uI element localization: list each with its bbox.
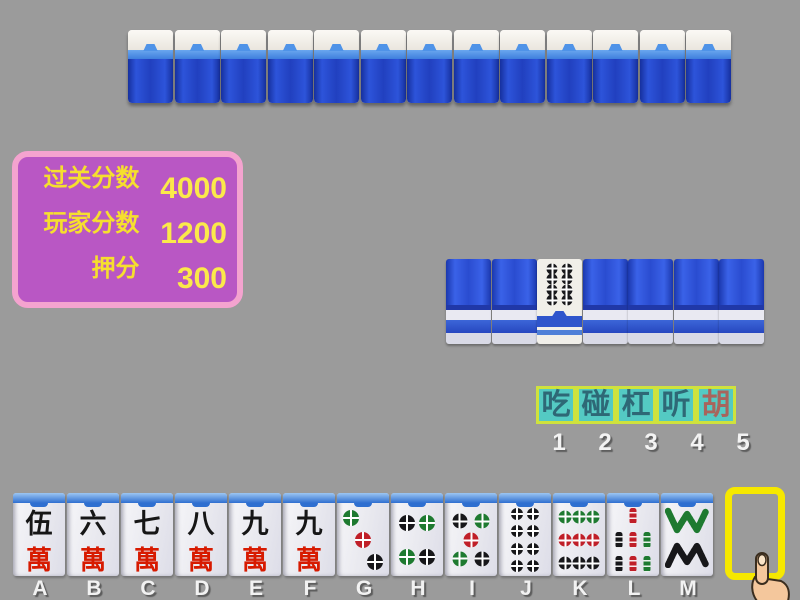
bamboo-stick: [643, 532, 650, 548]
hand-tile-C[interactable]: 七萬: [121, 493, 173, 576]
ting-button[interactable]: 听: [656, 386, 696, 424]
tile-face: 九萬: [229, 504, 281, 576]
dot-pip: [561, 295, 572, 306]
tile-face: [445, 504, 497, 576]
dot-pip: [527, 508, 539, 520]
dot-pip: [547, 295, 558, 306]
wan-suit-char: 萬: [175, 547, 227, 573]
wan-suit-char: 萬: [13, 547, 65, 573]
hand-key-label-D: D: [175, 577, 229, 600]
bamboo-stick: [643, 556, 650, 572]
opponent-tile-back-side: [719, 259, 764, 344]
opponent-tile-back-side: [492, 259, 537, 344]
hand-key-label-J: J: [499, 577, 553, 600]
score-row: 玩家分数 1200: [24, 210, 227, 249]
tile-face: [499, 504, 551, 576]
action-number-hint: 5: [720, 429, 766, 457]
bamboo-stick: [630, 532, 637, 548]
dot-pip: [573, 534, 586, 547]
chi-button[interactable]: 吃: [536, 386, 576, 424]
action-number-hint: 2: [582, 429, 628, 457]
bamboo-stick: [630, 556, 637, 572]
player-score-value: 1200: [139, 219, 227, 249]
tile-face: 八萬: [175, 504, 227, 576]
tile-face: [337, 504, 389, 576]
dot-pip: [586, 510, 599, 523]
dot-pip: [547, 263, 558, 274]
score-panel: 过关分数 4000 玩家分数 1200 押分 300: [12, 151, 243, 308]
hand-tile-L[interactable]: [607, 493, 659, 576]
opponent-tiles-right: [446, 259, 765, 344]
dot-pip: [399, 515, 415, 531]
score-row: 过关分数 4000: [24, 165, 227, 204]
dot-pip: [559, 557, 572, 570]
dot-pip: [561, 263, 572, 274]
opponent-tile-back: [268, 30, 313, 103]
opponent-tile-back: [361, 30, 406, 103]
hand-tile-K[interactable]: [553, 493, 605, 576]
action-button-bar: 吃碰杠听胡: [536, 386, 736, 424]
hand-key-label-M: M: [661, 577, 715, 600]
dot-pip: [559, 510, 572, 523]
hand-tile-A[interactable]: 伍萬: [13, 493, 65, 576]
bamboo-zigzag: [665, 506, 709, 539]
hand-tile-H[interactable]: [391, 493, 443, 576]
bamboo-stick: [630, 508, 637, 524]
wan-suit-char: 萬: [67, 547, 119, 573]
dot-pip: [419, 515, 435, 531]
wan-suit-char: 萬: [229, 547, 281, 573]
bamboo-zigzag: [665, 540, 709, 573]
tile-face: [391, 504, 443, 576]
opponent-hand-top: [128, 30, 733, 103]
tile-face: [661, 504, 713, 576]
hand-key-label-F: F: [283, 577, 337, 600]
bamboo-stick: [616, 532, 623, 548]
dot-pip: [511, 543, 523, 555]
player-score-label: 玩家分数: [24, 210, 139, 239]
hand-tile-D[interactable]: 八萬: [175, 493, 227, 576]
hand-key-label-H: H: [391, 577, 445, 600]
tile-face: 九萬: [283, 504, 335, 576]
hand-key-label-C: C: [121, 577, 175, 600]
dot-pip: [561, 284, 572, 295]
dot-pip: [559, 534, 572, 547]
score-row: 押分 300: [24, 255, 227, 294]
bet-score-value: 300: [139, 264, 227, 294]
gang-button[interactable]: 杠: [616, 386, 656, 424]
opponent-tile-back: [500, 30, 545, 103]
bet-score-label: 押分: [24, 255, 139, 284]
action-number-hint: 1: [536, 429, 582, 457]
dot-pip: [573, 557, 586, 570]
opponent-tile-back-side: [583, 259, 628, 344]
hand-key-label-B: B: [67, 577, 121, 600]
wan-suit-char: 萬: [121, 547, 173, 573]
dot-pip: [355, 532, 371, 548]
dot-pip: [527, 543, 539, 555]
hand-tile-J[interactable]: [499, 493, 551, 576]
wan-number-char: 伍: [13, 511, 65, 538]
tile-face: [607, 504, 659, 576]
dot-pip: [547, 284, 558, 295]
hand-key-label-K: K: [553, 577, 607, 600]
hand-tile-F[interactable]: 九萬: [283, 493, 335, 576]
dot-pip: [511, 508, 523, 520]
dot-pip: [511, 525, 523, 537]
bamboo-stick: [616, 556, 623, 572]
opponent-tile-back: [593, 30, 638, 103]
action-number-hint: 3: [628, 429, 674, 457]
hand-tile-I[interactable]: [445, 493, 497, 576]
opponent-tile-back: [407, 30, 452, 103]
player-hand: 伍萬六萬七萬八萬九萬九萬: [13, 493, 715, 576]
dot-pip: [527, 560, 539, 572]
opponent-tile-back: [128, 30, 173, 103]
opponent-tile-back-side: [628, 259, 673, 344]
dot-pip: [464, 533, 479, 548]
dot-pip: [475, 514, 490, 529]
dot-pip: [547, 274, 558, 285]
dot-pip: [452, 551, 467, 566]
tile-face: 六萬: [67, 504, 119, 576]
opponent-tile-back: [175, 30, 220, 103]
peng-button[interactable]: 碰: [576, 386, 616, 424]
dot-pip: [399, 549, 415, 565]
dot-pip: [343, 510, 359, 526]
hand-key-label-I: I: [445, 577, 499, 600]
mahjong-game-screen: 过关分数 4000 玩家分数 1200 押分 300 吃碰杠听胡 12345 伍…: [0, 0, 800, 600]
pass-score-label: 过关分数: [24, 165, 139, 194]
hand-key-label-G: G: [337, 577, 391, 600]
opponent-tile-back: [221, 30, 266, 103]
dot-pip: [419, 549, 435, 565]
action-number-hint: 4: [674, 429, 720, 457]
dot-pip: [573, 510, 586, 523]
hand-tile-G[interactable]: [337, 493, 389, 576]
opponent-face-up-tile-8-dots: [537, 259, 582, 344]
dot-pip: [367, 554, 383, 570]
hand-cursor-icon: [741, 551, 797, 600]
wan-number-char: 七: [121, 511, 173, 538]
dot-pip: [586, 534, 599, 547]
opponent-tile-back: [454, 30, 499, 103]
hand-tile-E[interactable]: 九萬: [229, 493, 281, 576]
wan-suit-char: 萬: [283, 547, 335, 573]
hand-key-label-A: A: [13, 577, 67, 600]
wan-number-char: 八: [175, 511, 227, 538]
tile-face: [553, 504, 605, 576]
wan-number-char: 九: [283, 511, 335, 538]
dot-pip: [561, 274, 572, 285]
tile-face: 七萬: [121, 504, 173, 576]
hand-key-label-L: L: [607, 577, 661, 600]
wan-number-char: 九: [229, 511, 281, 538]
hand-key-labels: ABCDEFGHIJKLM: [13, 577, 715, 600]
opponent-tile-back-side: [446, 259, 491, 344]
action-number-hints: 12345: [536, 429, 766, 457]
opponent-tile-back: [314, 30, 359, 103]
tile-face: 伍萬: [13, 504, 65, 576]
hu-button[interactable]: 胡: [696, 386, 736, 424]
opponent-tile-back: [686, 30, 731, 103]
wan-number-char: 六: [67, 511, 119, 538]
hand-tile-M[interactable]: [661, 493, 713, 576]
opponent-tile-back: [547, 30, 592, 103]
hand-tile-B[interactable]: 六萬: [67, 493, 119, 576]
opponent-tile-back-side: [674, 259, 719, 344]
dot-pip: [452, 514, 467, 529]
dot-pip: [586, 557, 599, 570]
dot-pip: [475, 551, 490, 566]
pass-score-value: 4000: [139, 174, 227, 204]
dot-pip: [511, 560, 523, 572]
opponent-tile-back: [640, 30, 685, 103]
dot-pip: [527, 525, 539, 537]
hand-key-label-E: E: [229, 577, 283, 600]
